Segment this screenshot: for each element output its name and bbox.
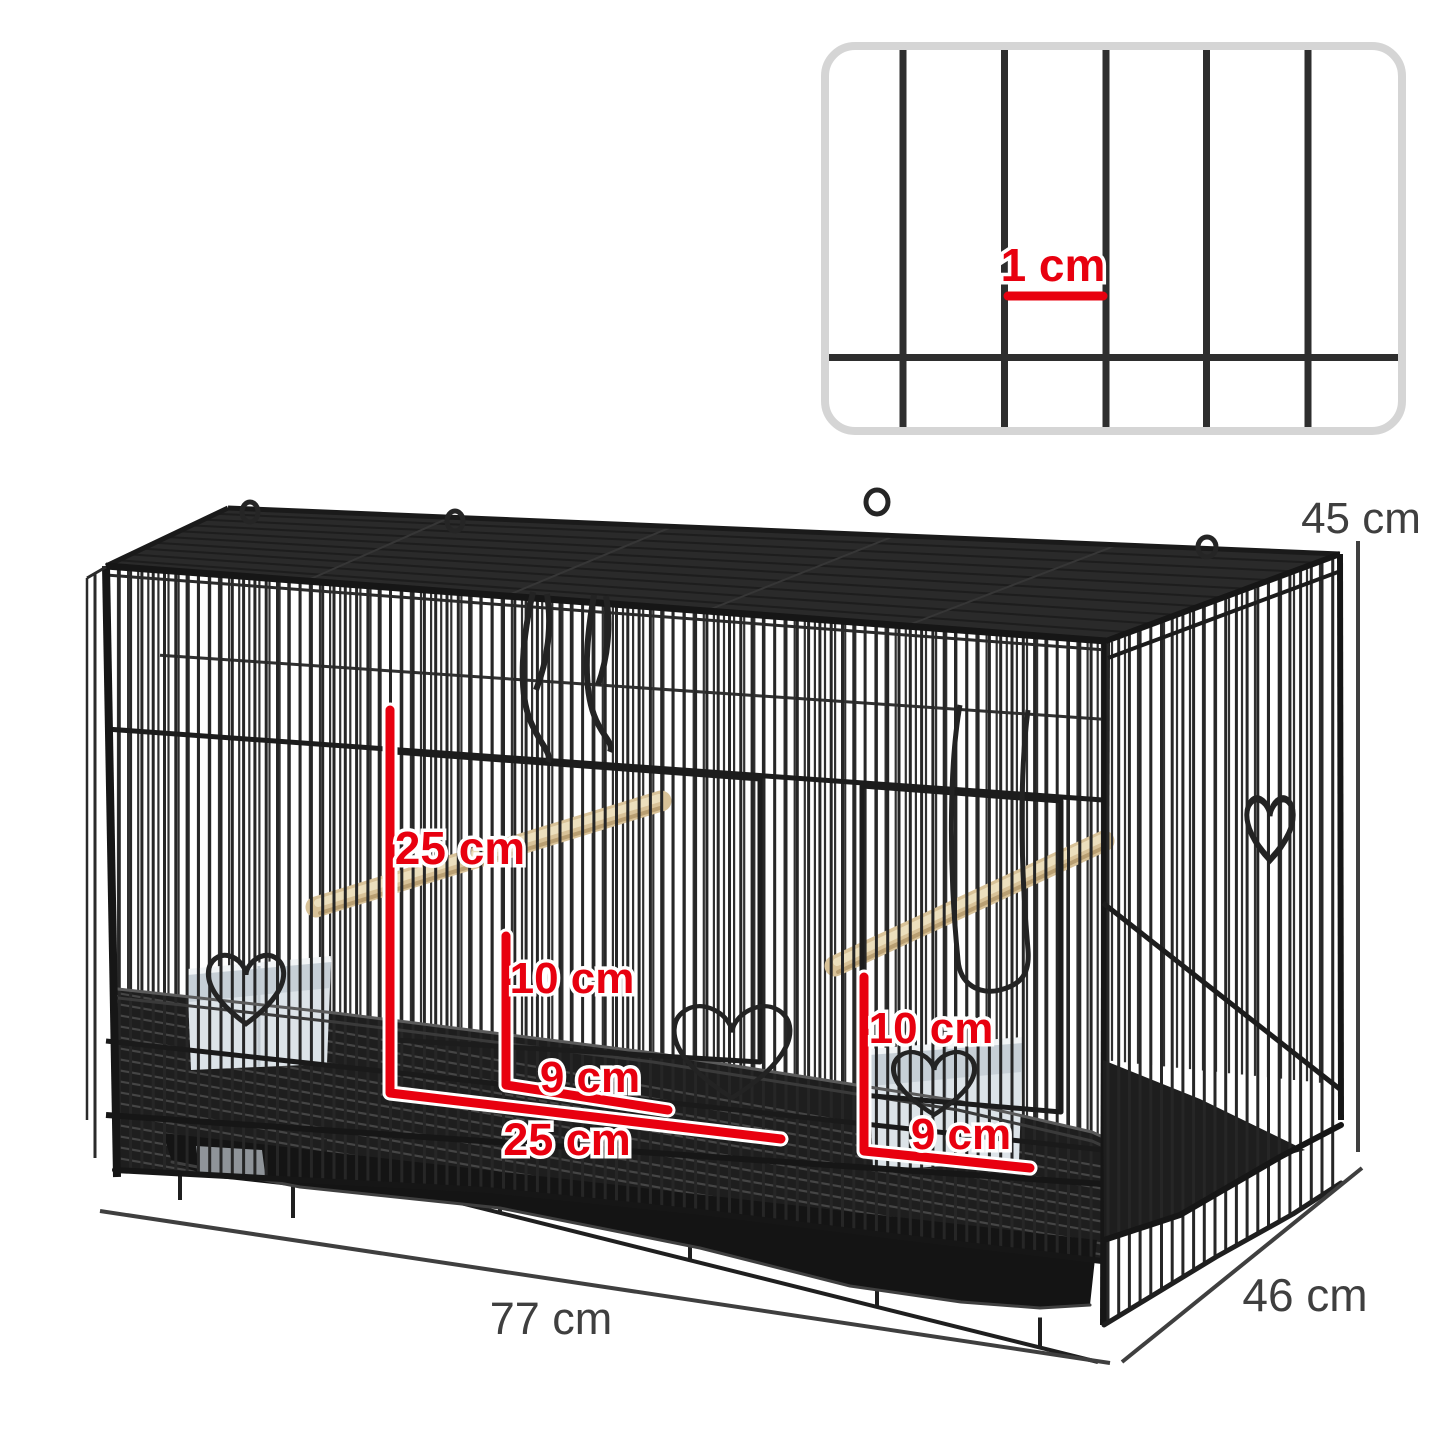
- svg-text:25 cm: 25 cm: [395, 822, 525, 874]
- svg-text:10 cm: 10 cm: [869, 1004, 994, 1053]
- svg-text:10 cm: 10 cm: [510, 954, 635, 1003]
- svg-text:9 cm: 9 cm: [911, 1110, 1011, 1159]
- svg-text:46 cm: 46 cm: [1242, 1269, 1367, 1321]
- svg-text:9 cm: 9 cm: [540, 1053, 640, 1102]
- svg-text:25 cm: 25 cm: [503, 1114, 631, 1165]
- svg-text:1 cm: 1 cm: [1001, 239, 1106, 291]
- svg-text:45 cm: 45 cm: [1301, 494, 1421, 543]
- svg-text:77 cm: 77 cm: [490, 1293, 613, 1344]
